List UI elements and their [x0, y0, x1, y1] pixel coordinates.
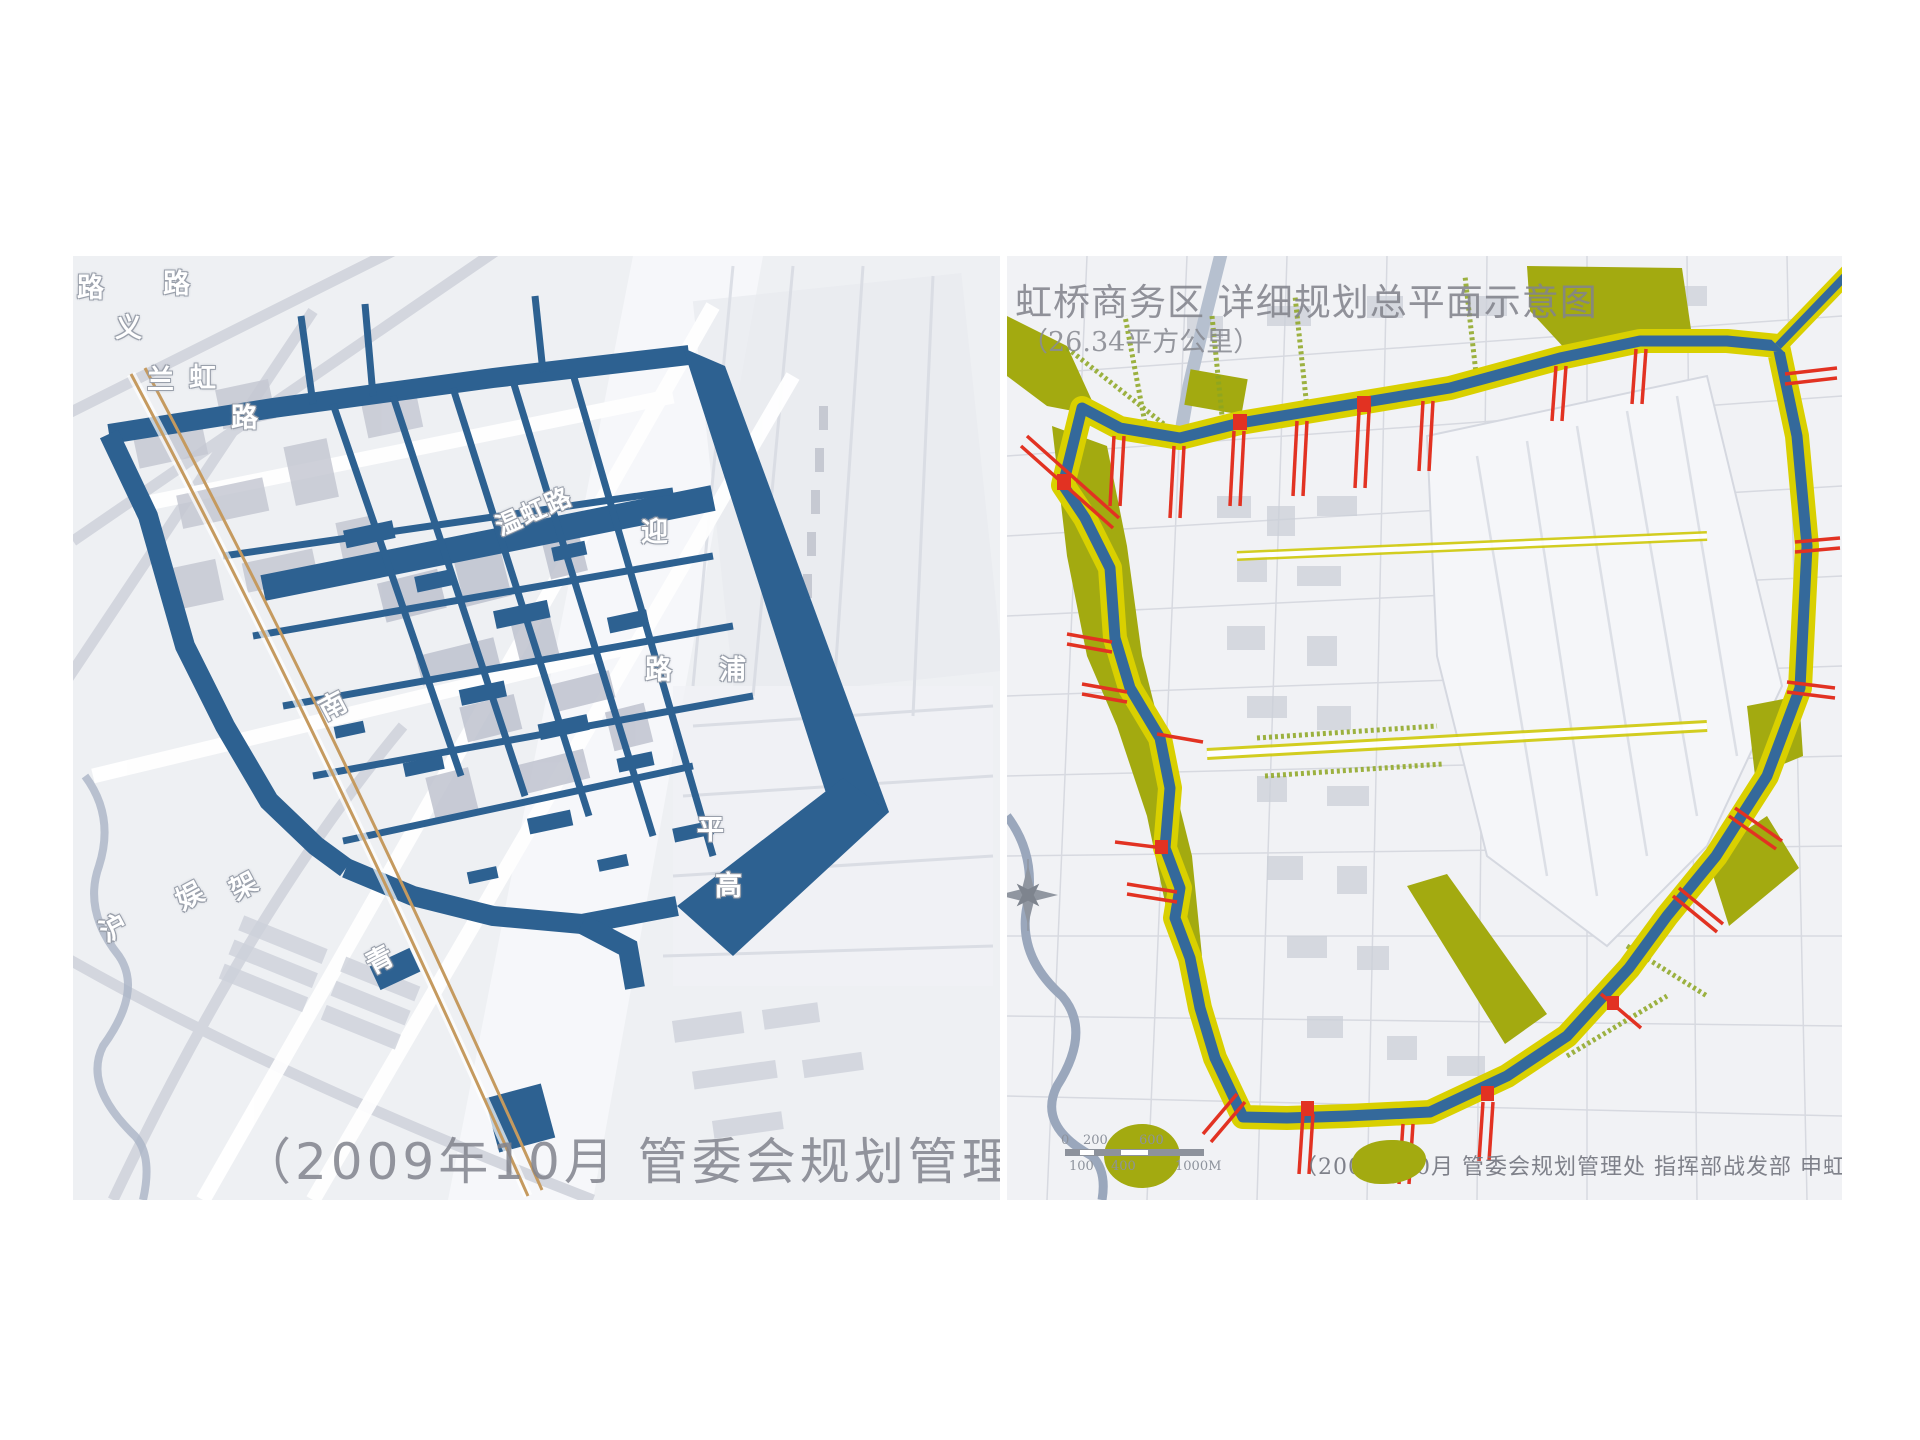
scale-label: 600 — [1139, 1134, 1164, 1147]
scale-label: 0 — [1061, 1134, 1069, 1147]
street-label: 路 — [231, 396, 260, 435]
scale-label: 400 — [1111, 1160, 1136, 1173]
street-label: 迎 — [641, 510, 670, 549]
street-label: 路 — [163, 262, 192, 301]
left-map-panel: 路 路 义 兰 虹 路 温虹路 南 架 青 娱 沪 迎 路 浦 平 高 （200… — [73, 256, 1000, 1200]
left-map-graphic — [73, 256, 1000, 1200]
right-map-subtitle: （26.34平方公里） — [1021, 320, 1260, 359]
street-label: 高 — [715, 864, 744, 903]
street-label: 浦 — [719, 648, 748, 687]
street-label: 平 — [697, 808, 726, 847]
scale-label: 1000M — [1175, 1160, 1221, 1173]
right-map-panel: 虹桥商务区 详细规划总平面示意图 （26.34平方公里） 0 200 600 1… — [1007, 256, 1842, 1200]
street-label: 虹 — [189, 356, 218, 395]
scale-label: 200 — [1083, 1134, 1108, 1147]
scale-label: 100 — [1069, 1160, 1094, 1173]
street-label: 路 — [77, 266, 106, 305]
left-map-caption: （2009年10月 管委会规划管理处 — [241, 1122, 1000, 1194]
street-label: 兰 — [147, 358, 176, 397]
right-map-title: 虹桥商务区 详细规划总平面示意图 — [1015, 272, 1598, 326]
right-map-graphic — [1007, 256, 1842, 1200]
scale-bar-segments — [1065, 1149, 1204, 1156]
screenshot-canvas: 路 路 义 兰 虹 路 温虹路 南 架 青 娱 沪 迎 路 浦 平 高 （200… — [0, 0, 1920, 1440]
street-label: 路 — [645, 648, 674, 687]
scale-bar: 0 200 600 100 400 1000M — [1057, 1134, 1217, 1176]
street-label: 义 — [115, 306, 144, 345]
